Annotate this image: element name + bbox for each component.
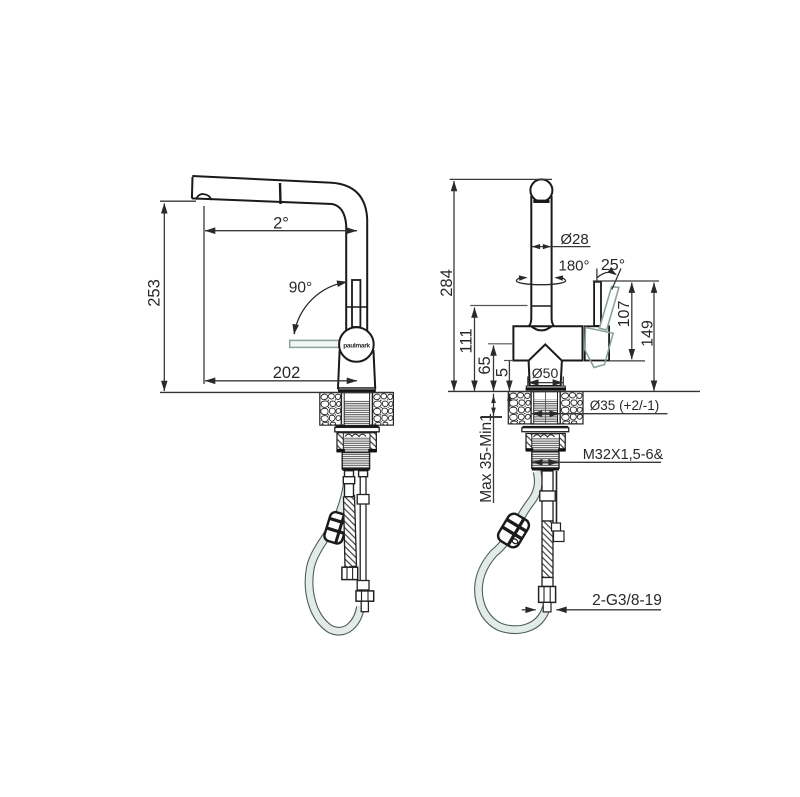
svg-text:M32X1,5-6&: M32X1,5-6& — [583, 447, 664, 463]
svg-text:65: 65 — [476, 356, 494, 374]
svg-text:149: 149 — [640, 320, 657, 347]
svg-text:2-G3/8-19: 2-G3/8-19 — [592, 592, 662, 609]
svg-text:111: 111 — [457, 328, 475, 353]
svg-text:107: 107 — [616, 301, 633, 328]
svg-text:paulmark: paulmark — [343, 342, 370, 349]
svg-text:90°: 90° — [289, 280, 312, 297]
svg-text:25°: 25° — [601, 257, 625, 274]
svg-text:5: 5 — [494, 368, 512, 377]
svg-text:Ø28: Ø28 — [560, 231, 588, 248]
svg-text:Max 35-Min1: Max 35-Min1 — [478, 413, 495, 503]
svg-text:202: 202 — [273, 364, 301, 382]
svg-text:Ø35 (+2/-1): Ø35 (+2/-1) — [590, 398, 659, 413]
svg-text:Ø50: Ø50 — [532, 365, 559, 381]
svg-text:2°: 2° — [273, 215, 289, 233]
svg-text:180°: 180° — [558, 258, 589, 275]
svg-text:253: 253 — [146, 279, 164, 307]
svg-text:284: 284 — [438, 269, 456, 297]
